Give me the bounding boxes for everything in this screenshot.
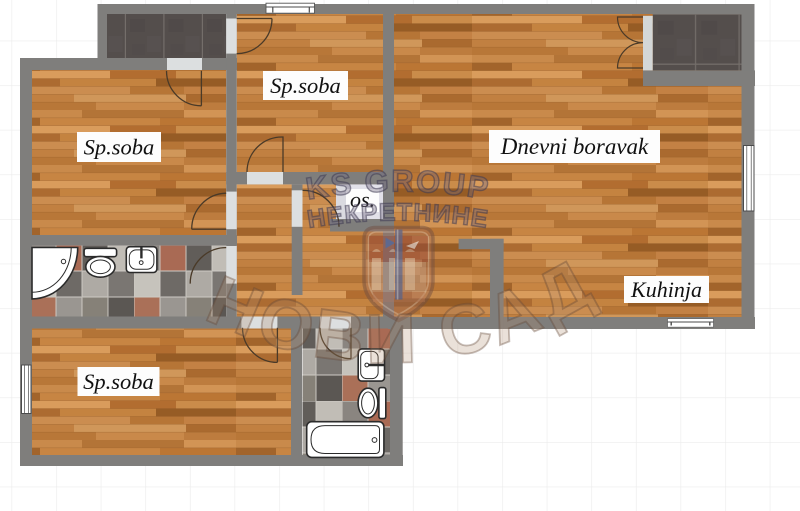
svg-text:Sp.soba: Sp.soba bbox=[83, 369, 154, 394]
svg-text:Kuhinja: Kuhinja bbox=[630, 277, 702, 302]
svg-text:Dnevni boravak: Dnevni boravak bbox=[500, 134, 649, 159]
svg-text:Sp.soba: Sp.soba bbox=[84, 135, 155, 160]
svg-text:Sp.soba: Sp.soba bbox=[270, 73, 341, 98]
